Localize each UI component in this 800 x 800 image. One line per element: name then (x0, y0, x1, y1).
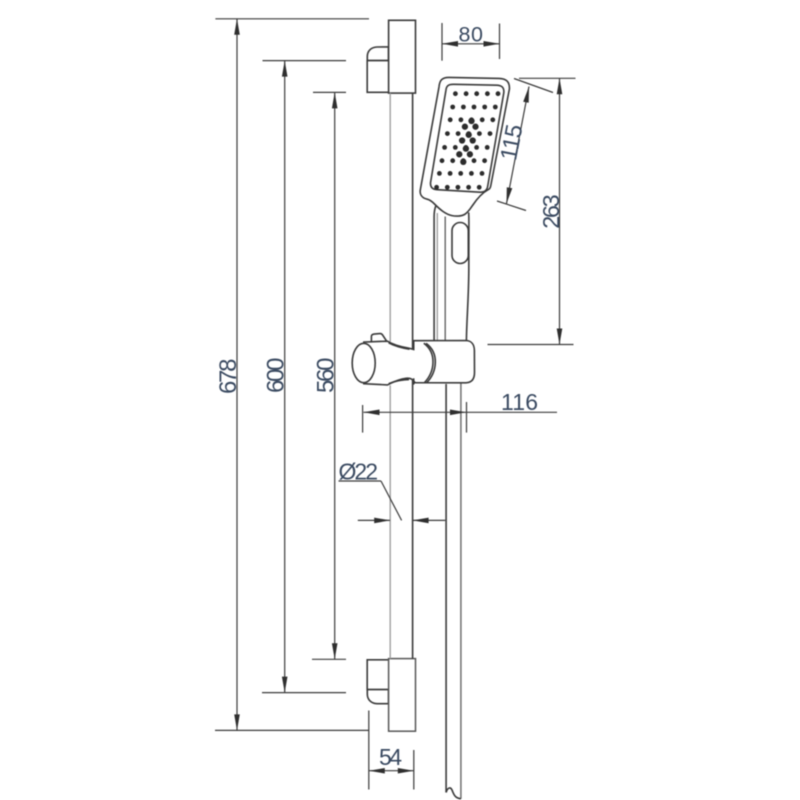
svg-text:54: 54 (379, 744, 402, 770)
svg-text:678: 678 (215, 359, 242, 395)
svg-text:263: 263 (538, 194, 564, 229)
svg-text:116: 116 (501, 389, 538, 415)
svg-text:560: 560 (313, 358, 340, 394)
svg-text:80: 80 (459, 22, 484, 46)
svg-text:600: 600 (263, 358, 290, 394)
